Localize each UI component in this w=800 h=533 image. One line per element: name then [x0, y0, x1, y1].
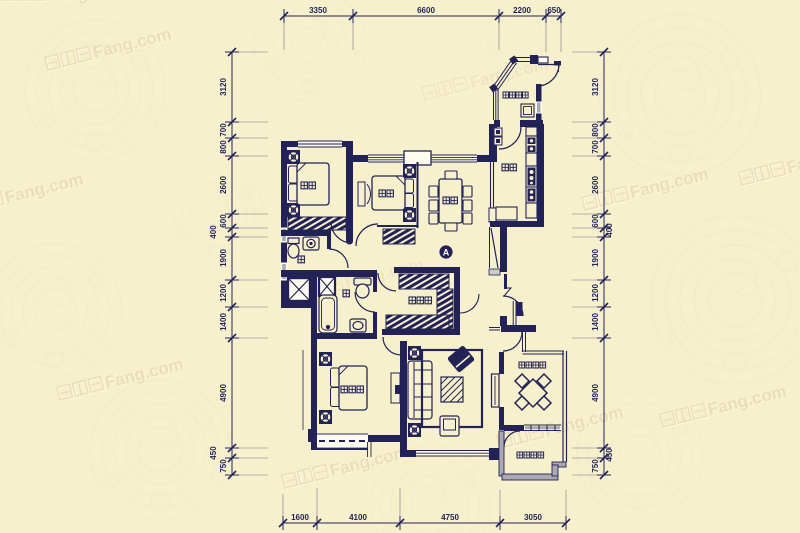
svg-text:650: 650: [547, 6, 561, 15]
svg-text:3050: 3050: [524, 513, 542, 522]
svg-text:450: 450: [209, 446, 218, 460]
svg-text:750: 750: [591, 459, 600, 473]
svg-text:700: 700: [219, 123, 228, 137]
svg-text:1900: 1900: [591, 249, 600, 267]
svg-text:3120: 3120: [219, 78, 228, 96]
svg-text:600: 600: [591, 214, 600, 228]
svg-text:2200: 2200: [513, 6, 531, 15]
svg-text:4900: 4900: [591, 384, 600, 402]
svg-text:4750: 4750: [441, 513, 459, 522]
svg-text:3120: 3120: [591, 78, 600, 96]
svg-text:800: 800: [219, 140, 228, 154]
svg-text:450: 450: [605, 448, 614, 462]
svg-text:700: 700: [591, 140, 600, 154]
svg-text:4900: 4900: [219, 384, 228, 402]
svg-text:1900: 1900: [219, 249, 228, 267]
svg-text:1400: 1400: [219, 313, 228, 331]
svg-text:3350: 3350: [309, 6, 327, 15]
svg-text:800: 800: [591, 123, 600, 137]
svg-text:2600: 2600: [219, 176, 228, 194]
svg-text:4100: 4100: [349, 513, 367, 522]
svg-text:400: 400: [209, 225, 218, 239]
svg-text:2600: 2600: [591, 176, 600, 194]
svg-text:1400: 1400: [591, 313, 600, 331]
svg-text:1600: 1600: [291, 513, 309, 522]
svg-text:1200: 1200: [591, 284, 600, 302]
svg-text:400: 400: [605, 223, 614, 237]
svg-text:6600: 6600: [417, 6, 435, 15]
svg-text:A: A: [443, 248, 450, 258]
svg-text:600: 600: [219, 214, 228, 228]
svg-text:750: 750: [219, 459, 228, 473]
svg-text:1200: 1200: [219, 284, 228, 302]
svg-text:Fang.com: Fang.com: [48, 0, 128, 4]
